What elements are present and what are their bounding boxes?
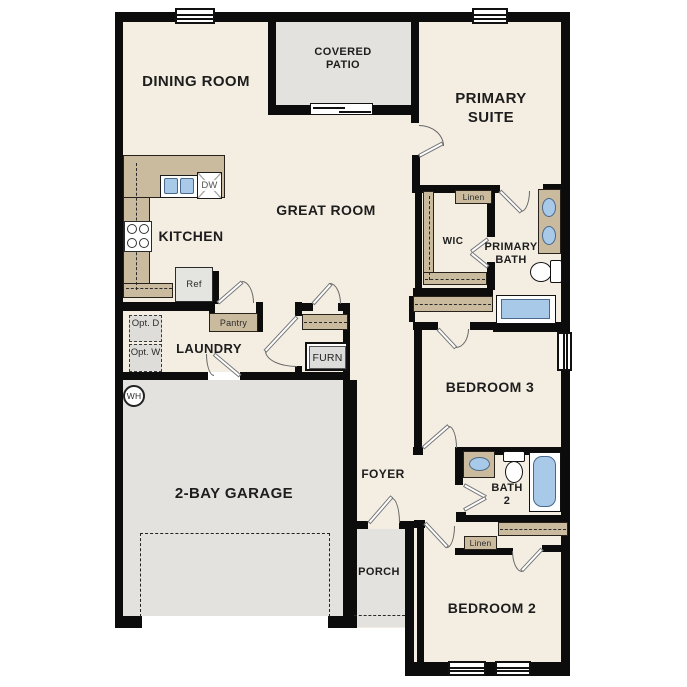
vanity-sink	[542, 198, 556, 217]
shelf-dash	[429, 196, 430, 280]
kitchen-counter-bottom	[123, 283, 173, 298]
shelf-dash	[425, 279, 485, 280]
wall-segment	[295, 302, 302, 316]
room-label-bedroom3: BEDROOM 3	[434, 379, 546, 395]
dishwasher-label: DW	[200, 180, 218, 191]
floor-plan: DW Ref Opt. D Opt. W Pantry FURN WH Line…	[0, 0, 687, 687]
sliding-door	[310, 103, 373, 115]
primary-bathtub	[496, 295, 556, 324]
window-pane-line	[563, 334, 565, 369]
water-heater-label: WH	[127, 391, 142, 401]
wall-segment	[405, 521, 414, 676]
window	[448, 661, 486, 676]
burner	[127, 238, 137, 248]
room-label-kitchen: KITCHEN	[148, 228, 234, 244]
refrigerator: Ref	[175, 267, 213, 302]
porch-surface	[352, 529, 405, 627]
room-label-bath2: BATH 2	[487, 482, 527, 508]
optional-dryer-label: Opt. D	[132, 318, 159, 329]
room-label-great: GREAT ROOM	[276, 202, 376, 219]
room-label-patio: COVERED PATIO	[296, 46, 390, 72]
room-label-foyer: FOYER	[353, 467, 413, 481]
sink-basin	[180, 178, 194, 194]
optional-washer-box: Opt. W	[129, 344, 162, 372]
shelf-dash	[304, 322, 347, 323]
room-label-dining: DINING ROOM	[142, 72, 250, 91]
window-pane-line	[566, 334, 568, 369]
room-label-porch: PORCH	[355, 566, 403, 578]
window-pane-line	[497, 670, 529, 672]
wall-segment	[373, 105, 411, 115]
sliding-door-panel	[313, 107, 345, 109]
linen-label: Linen	[470, 538, 492, 548]
room-label-laundry: LAUNDRY	[164, 341, 254, 356]
window	[472, 8, 508, 24]
wall-segment	[415, 186, 422, 288]
tub-basin	[501, 299, 550, 319]
window-pane-line	[177, 14, 213, 16]
wall-segment	[343, 380, 357, 628]
window-pane-line	[497, 667, 529, 669]
wall-segment	[493, 323, 570, 332]
window	[557, 332, 572, 371]
linen-closet-hall: Linen	[464, 536, 497, 550]
wall-segment	[542, 545, 570, 552]
wall-segment	[411, 12, 419, 123]
bath2-tub	[529, 452, 561, 512]
water-heater: WH	[123, 385, 145, 407]
counter-dash	[126, 288, 172, 289]
room-label-primary: PRIMARY SUITE	[436, 89, 546, 127]
wall-segment	[408, 662, 570, 676]
wall-segment	[455, 447, 463, 485]
wall-segment	[417, 520, 424, 666]
wall-segment	[268, 105, 310, 115]
burner	[127, 224, 137, 234]
refrigerator-label: Ref	[186, 279, 201, 290]
optional-dryer-box: Opt. D	[129, 315, 162, 342]
kitchen-sink	[160, 175, 198, 198]
vanity-sink	[469, 457, 490, 471]
toilet-tank	[550, 260, 562, 283]
toilet-icon	[505, 461, 523, 483]
wall-segment	[240, 372, 350, 380]
wall-segment	[413, 447, 423, 455]
shelf-dash	[415, 304, 491, 305]
sink-basin	[164, 178, 178, 194]
outside-cutout	[350, 628, 406, 662]
window-pane-line	[450, 667, 484, 669]
window	[495, 661, 531, 676]
pantry-label: Pantry	[220, 318, 247, 328]
furnace-inner: FURN	[309, 346, 346, 369]
room-label-wic: WIC	[437, 236, 469, 247]
wall-segment	[352, 521, 368, 529]
window-pane-line	[474, 18, 506, 20]
window	[175, 8, 215, 24]
furnace-unit: FURN	[305, 342, 348, 371]
wall-segment	[115, 616, 142, 628]
window-pane-line	[450, 670, 484, 672]
wall-segment	[115, 372, 208, 380]
sliding-door-panel	[339, 111, 371, 113]
dishwasher: DW	[197, 172, 222, 199]
room-label-primary-bath: PRIMARY BATH	[472, 241, 550, 267]
linen-closet-primary: Linen	[455, 190, 492, 204]
window-pane-line	[474, 14, 506, 16]
room-label-bedroom2: BEDROOM 2	[436, 600, 548, 616]
wall-segment	[115, 302, 213, 311]
garage-door-outline	[140, 533, 330, 617]
tub-basin	[533, 456, 556, 507]
pantry-closet: Pantry	[209, 313, 258, 332]
shelf-dash	[500, 529, 566, 530]
wall-segment	[412, 155, 420, 188]
window-pane-line	[177, 18, 213, 20]
wall-segment	[413, 288, 493, 296]
linen-label: Linen	[463, 192, 485, 202]
optional-washer-label: Opt. W	[131, 347, 161, 358]
wall-segment	[460, 515, 570, 522]
wall-segment	[268, 12, 276, 115]
porch-edge-dash	[354, 615, 405, 616]
furnace-label: FURN	[313, 352, 343, 364]
wall-segment	[115, 12, 123, 628]
wall-segment	[414, 322, 422, 447]
room-label-garage: 2-BAY GARAGE	[174, 484, 294, 503]
